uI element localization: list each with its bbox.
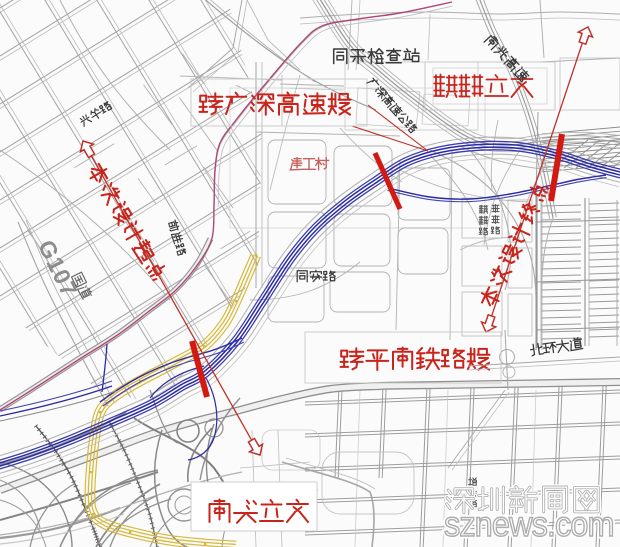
svg-text:sznews.com: sznews.com bbox=[444, 505, 614, 544]
